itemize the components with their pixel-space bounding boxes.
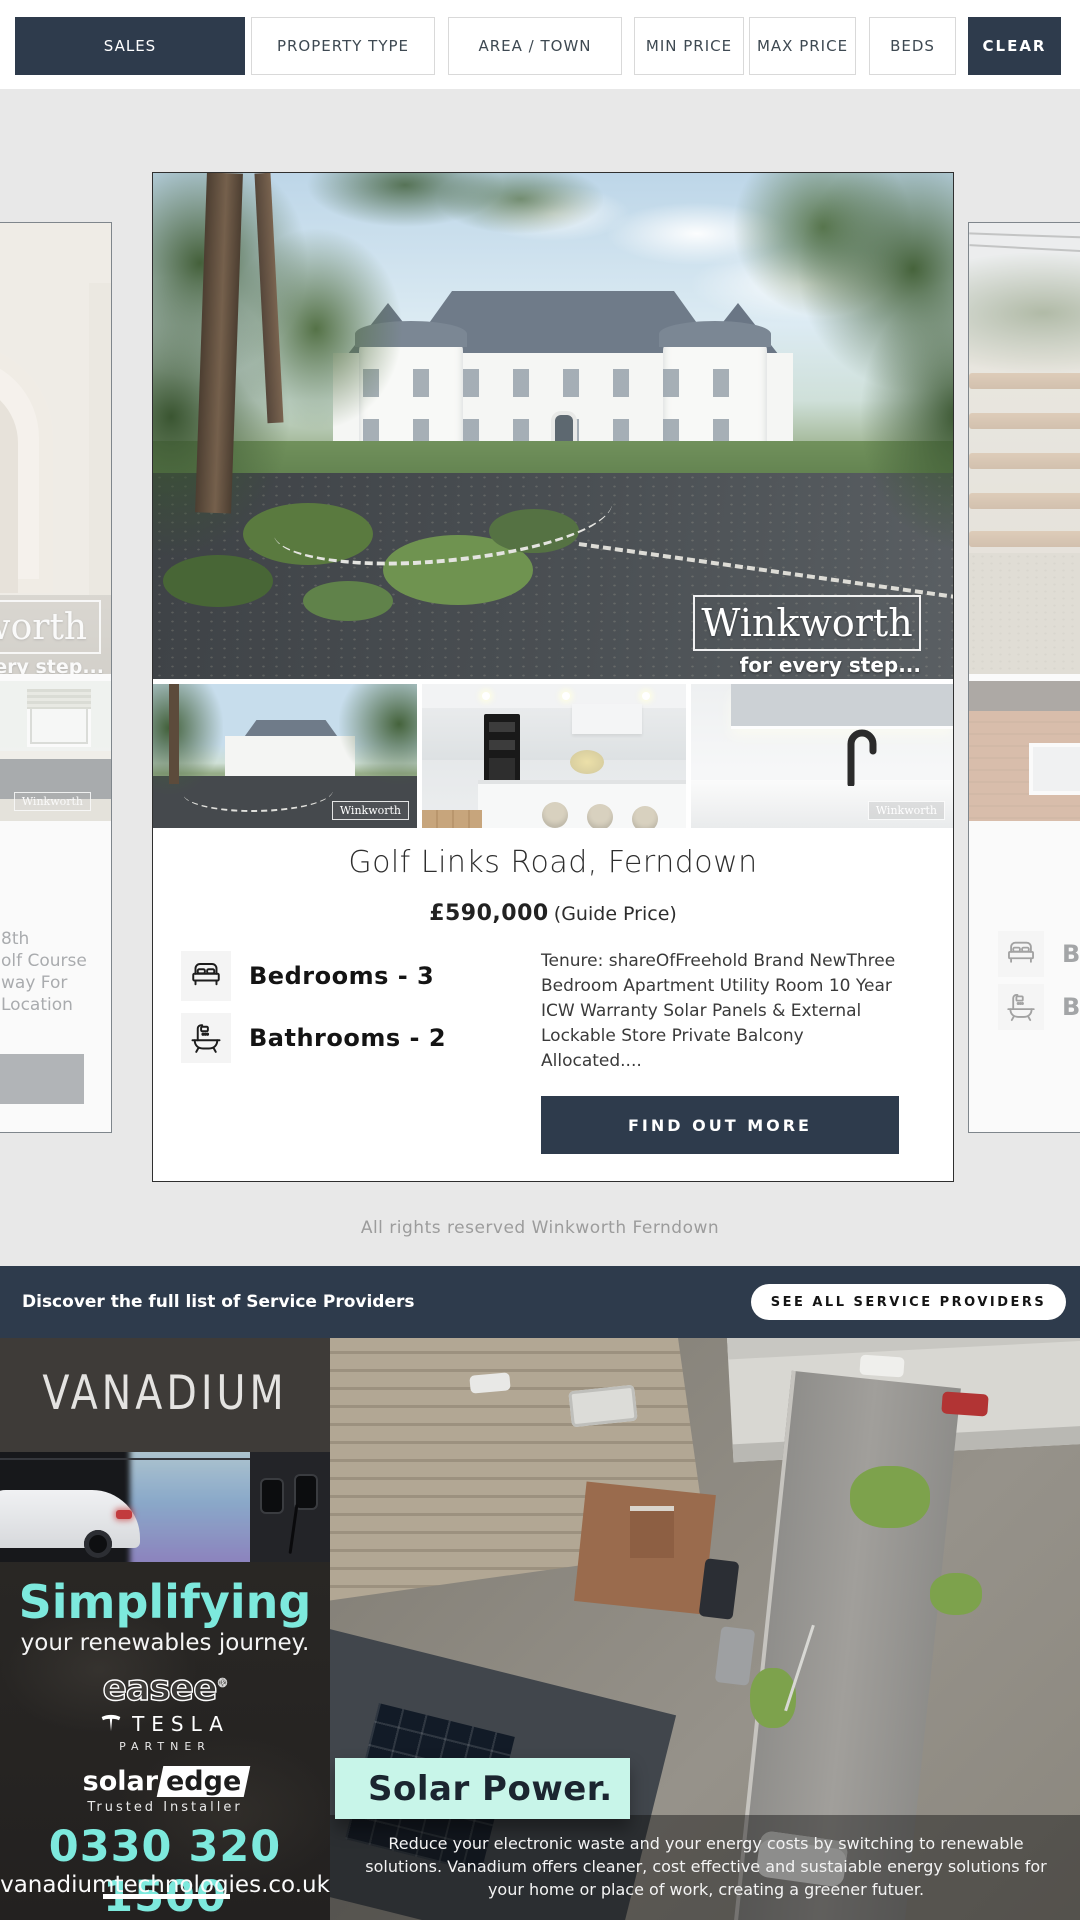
- tesla-partner-label: PARTNER: [0, 1740, 330, 1753]
- bathrooms-label: Bathrooms - 2: [249, 1024, 446, 1052]
- next-bedrooms-fragment: Be: [1062, 940, 1080, 968]
- property-search-page: SALES PROPERTY TYPE AREA / TOWN MIN PRIC…: [0, 0, 1080, 1920]
- solaredge-logo: solaredge: [0, 1766, 330, 1797]
- thumbnail-sink[interactable]: Winkworth: [691, 684, 954, 828]
- bath-icon: [181, 1013, 231, 1063]
- electric-car: [0, 1490, 140, 1548]
- bedrooms-label: Bedrooms - 3: [249, 962, 434, 990]
- find-out-more-button[interactable]: FIND OUT MORE: [541, 1096, 899, 1154]
- lawn-patch: [850, 1466, 930, 1528]
- parked-car: [469, 1372, 510, 1393]
- ad-aerial-photo: Solar Power. Reduce your electronic wast…: [330, 1338, 1080, 1920]
- filter-sales-button[interactable]: SALES: [15, 17, 245, 75]
- solar-power-banner: Solar Power.: [335, 1758, 630, 1819]
- property-price-line: £590,000 (Guide Price): [153, 901, 953, 926]
- next-property-photo: [969, 223, 1080, 674]
- ad-phone-number: 0330 320 1500: [0, 1822, 330, 1920]
- bedrooms-row: Bedrooms - 3: [181, 951, 511, 1001]
- previous-property-photo: Winkworth for every step...: [0, 223, 112, 674]
- ad-body-text: Reduce your electronic waste and your en…: [350, 1832, 1062, 1901]
- ad-left-panel: VANADIUM Simplifying your renewables jou…: [0, 1338, 330, 1920]
- main-property-photo[interactable]: Winkworth for every step...: [153, 173, 953, 679]
- ad-progress-bar: [103, 1894, 230, 1899]
- filter-clear-button[interactable]: CLEAR: [968, 17, 1061, 75]
- solaredge-trusted-installer: Trusted Installer: [0, 1800, 330, 1815]
- carousel-card-previous[interactable]: Winkworth for every step... Winkworth 8t…: [0, 222, 112, 1133]
- previous-thumbnail-kitchen[interactable]: Winkworth: [0, 681, 112, 821]
- bathrooms-row: Bathrooms - 2: [181, 1013, 511, 1063]
- copyright-text: All rights reserved Winkworth Ferndown: [0, 1218, 1080, 1238]
- easee-logo: easee®: [0, 1668, 330, 1709]
- next-bedrooms-row: Be: [998, 931, 1080, 977]
- next-bathrooms-fragment: Ba: [1062, 993, 1080, 1021]
- wall-charger: [262, 1480, 282, 1512]
- tesla-logo-row: TESLA: [0, 1710, 330, 1738]
- gate-bar: [969, 373, 1080, 389]
- thumb-watermark: Winkworth: [868, 801, 945, 820]
- filter-area-town-button[interactable]: AREA / TOWN: [448, 17, 622, 75]
- bed-icon: [998, 931, 1044, 977]
- carousel-card-active: Winkworth for every step... Winkworth: [152, 172, 954, 1182]
- tap-illustration: [841, 722, 885, 790]
- thumb-watermark: Winkworth: [332, 801, 409, 820]
- tesla-wordmark: TESLA: [132, 1712, 230, 1736]
- watermark-tagline: for every step...: [713, 653, 921, 677]
- ad-headline: Simplifying: [0, 1575, 330, 1629]
- ev-charger-photo: [0, 1452, 330, 1562]
- main-thumbnails: Winkworth: [153, 684, 953, 828]
- see-all-service-providers-button[interactable]: SEE ALL SERVICE PROVIDERS: [751, 1284, 1066, 1320]
- thumbnail-kitchen[interactable]: [422, 684, 686, 828]
- filter-bar: SALES PROPERTY TYPE AREA / TOWN MIN PRIC…: [0, 0, 1080, 89]
- bed-icon: [181, 951, 231, 1001]
- vanadium-ad-banner[interactable]: VANADIUM Simplifying your renewables jou…: [0, 1338, 1080, 1920]
- next-bathrooms-row: Ba: [998, 984, 1080, 1030]
- filter-property-type-button[interactable]: PROPERTY TYPE: [251, 17, 435, 75]
- watermark-tagline: for every step...: [0, 656, 104, 674]
- next-thumbnail-cottage[interactable]: [969, 681, 1080, 821]
- vanadium-logo: VANADIUM: [0, 1366, 330, 1421]
- previous-description-fragment: 8th olf Course way For Location: [1, 928, 112, 1016]
- tesla-t-icon: [100, 1710, 122, 1738]
- solar-power-title: Solar Power.: [368, 1769, 613, 1809]
- price: £590,000: [429, 901, 549, 926]
- bath-icon: [998, 984, 1044, 1030]
- thumb-watermark: Winkworth: [14, 792, 91, 811]
- ad-subheadline: your renewables journey.: [0, 1630, 330, 1656]
- thumbnail-exterior[interactable]: Winkworth: [153, 684, 417, 828]
- previous-thumbnails: Winkworth: [0, 681, 112, 821]
- winkworth-watermark: Winkworth: [0, 600, 101, 654]
- previous-cta-button[interactable]: [0, 1054, 84, 1104]
- property-description: Tenure: shareOfFreehold Brand NewThree B…: [541, 949, 909, 1074]
- filter-beds-button[interactable]: BEDS: [869, 17, 956, 75]
- winkworth-watermark: Winkworth: [693, 595, 921, 651]
- service-bar-heading: Discover the full list of Service Provid…: [22, 1266, 415, 1338]
- filter-max-price-button[interactable]: MAX PRICE: [749, 17, 856, 75]
- chimney: [630, 1506, 674, 1558]
- service-providers-bar: Discover the full list of Service Provid…: [0, 1266, 1080, 1338]
- property-title: Golf Links Road, Ferndown: [153, 845, 953, 880]
- filter-min-price-button[interactable]: MIN PRICE: [634, 17, 744, 75]
- carousel-card-next[interactable]: Be Ba: [968, 222, 1080, 1133]
